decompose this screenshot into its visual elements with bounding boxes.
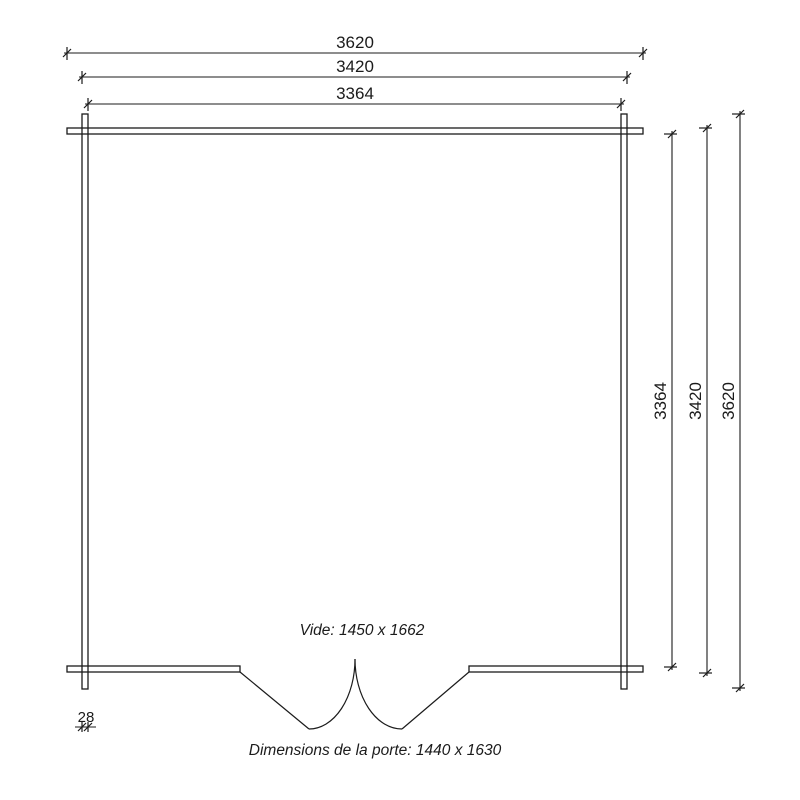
wall-bottom-beam-right bbox=[469, 666, 643, 672]
dimension-right-3620: 3620 bbox=[719, 110, 745, 692]
door-left-swing-arc bbox=[309, 659, 355, 729]
dimension-top-3364: 3364 bbox=[84, 84, 625, 111]
wall-top-beam bbox=[67, 128, 643, 134]
dimension-wall-thickness: 28 bbox=[75, 709, 96, 732]
dim-value-right-outer: 3620 bbox=[719, 382, 738, 420]
floor-plan-canvas: 3620 3420 3364 3364 bbox=[0, 0, 800, 800]
dimension-top-3620: 3620 bbox=[63, 33, 647, 60]
door-size-note: Dimensions de la porte: 1440 x 1630 bbox=[249, 742, 502, 759]
dim-value-top-outer: 3620 bbox=[336, 33, 374, 52]
dim-value-top-middle: 3420 bbox=[336, 57, 374, 76]
walls bbox=[67, 114, 643, 689]
wall-right-beam bbox=[621, 114, 627, 689]
door-left-leaf bbox=[240, 672, 309, 729]
door-swing bbox=[240, 659, 469, 729]
dim-value-wall-thickness: 28 bbox=[78, 709, 95, 726]
opening-size-note: Vide: 1450 x 1662 bbox=[300, 622, 425, 639]
door-right-leaf bbox=[402, 672, 469, 729]
wall-bottom-beam-left bbox=[67, 666, 240, 672]
dim-value-top-inner: 3364 bbox=[336, 84, 374, 103]
shed-floor-plan: 3620 3420 3364 3364 bbox=[0, 0, 800, 800]
door-right-swing-arc bbox=[355, 659, 402, 729]
dimension-top-3420: 3420 bbox=[78, 57, 631, 84]
wall-left-beam bbox=[82, 114, 88, 689]
dimension-right-3364: 3364 bbox=[651, 130, 677, 671]
dim-value-right-inner: 3364 bbox=[651, 382, 670, 420]
dimension-right-3420: 3420 bbox=[686, 124, 712, 677]
dim-value-right-middle: 3420 bbox=[686, 382, 705, 420]
